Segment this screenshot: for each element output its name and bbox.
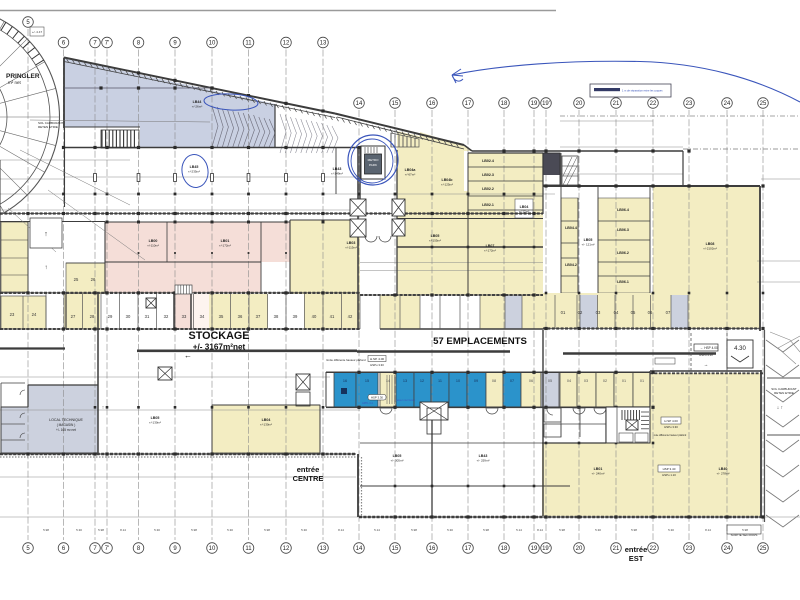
svg-text:LB01: LB01	[221, 239, 230, 243]
svg-text:LB07: LB07	[486, 244, 495, 248]
svg-text:5.98: 5.98	[742, 528, 748, 532]
svg-text:18: 18	[501, 546, 508, 552]
svg-text:LB06.1: LB06.1	[617, 280, 629, 284]
svg-text:04: 04	[614, 310, 619, 315]
svg-text:+/-26m²: +/-26m²	[192, 105, 202, 109]
svg-text:13: 13	[320, 41, 327, 47]
svg-text:+/-115m²: +/-115m²	[345, 246, 357, 250]
svg-text:PRINGLER: PRINGLER	[6, 73, 40, 80]
svg-text:15: 15	[392, 101, 399, 107]
svg-text:+/-67m²: +/-67m²	[405, 173, 415, 177]
svg-text:42: 42	[348, 314, 353, 319]
svg-text:HSPu 3.30: HSPu 3.30	[664, 425, 678, 429]
svg-text:+/- 240m²: +/- 240m²	[592, 472, 605, 476]
svg-text:05: 05	[548, 379, 552, 383]
svg-text:LB05: LB05	[151, 416, 160, 420]
svg-text:+/- 305m²: +/- 305m²	[391, 459, 404, 463]
svg-text:LB40: LB40	[719, 467, 728, 471]
svg-text:4.30: 4.30	[734, 346, 746, 352]
svg-text:+/-12m²: +/-12m²	[519, 210, 529, 214]
svg-text:LB01: LB01	[594, 467, 603, 471]
svg-text:+/-235m²: +/-235m²	[188, 170, 200, 174]
svg-text:24: 24	[724, 101, 731, 107]
svg-text:5.98: 5.98	[631, 528, 637, 532]
svg-text:06: 06	[529, 379, 533, 383]
svg-text:16: 16	[429, 101, 436, 107]
svg-text:+/-130m²: +/-130m²	[260, 423, 272, 427]
svg-text:11: 11	[245, 41, 252, 47]
svg-text:entrée: entrée	[625, 545, 648, 554]
svg-text:03: 03	[596, 310, 601, 315]
svg-text:39: 39	[293, 314, 298, 319]
svg-text:+/-2102m²: +/-2102m²	[703, 247, 717, 251]
svg-text:PARK: PARK	[369, 163, 377, 167]
svg-text:HSPu 4.30: HSPu 4.30	[699, 353, 713, 357]
svg-text:5.30: 5.30	[595, 528, 601, 532]
svg-text:LB05: LB05	[431, 234, 440, 238]
svg-text:EST: EST	[629, 554, 644, 563]
svg-text:19: 19	[531, 101, 538, 107]
svg-text:27: 27	[71, 314, 76, 319]
svg-text:10: 10	[209, 41, 216, 47]
svg-text:25: 25	[760, 546, 767, 552]
svg-text:23: 23	[686, 546, 693, 552]
svg-text:5.98: 5.98	[411, 528, 417, 532]
svg-text:17: 17	[465, 546, 472, 552]
svg-text:+/- 4.47: +/- 4.47	[32, 30, 43, 34]
svg-text:LB44: LB44	[193, 100, 202, 104]
svg-text:METRO: METRO	[368, 158, 379, 162]
svg-text:5.30: 5.30	[76, 528, 82, 532]
svg-text:25: 25	[760, 101, 767, 107]
svg-text:05: 05	[631, 310, 636, 315]
svg-text:12: 12	[283, 41, 290, 47]
svg-text:STOCKAGE: STOCKAGE	[189, 330, 250, 342]
svg-text:+/-125m²: +/-125m²	[441, 183, 453, 187]
svg-text:22: 22	[650, 101, 657, 107]
svg-text:11: 11	[245, 546, 252, 552]
svg-text:21: 21	[613, 101, 620, 107]
svg-text:8.14: 8.14	[537, 528, 543, 532]
svg-text:LB04: LB04	[520, 205, 529, 209]
svg-text:m² net: m² net	[8, 80, 22, 85]
svg-text:5.30: 5.30	[154, 528, 160, 532]
svg-text:5.98: 5.98	[43, 528, 49, 532]
svg-text:5.14: 5.14	[516, 528, 522, 532]
svg-text:+/- 3167m²net: +/- 3167m²net	[193, 343, 246, 352]
svg-text:23: 23	[10, 312, 15, 317]
svg-text:22: 22	[650, 546, 657, 552]
svg-text:+/-155m²: +/-155m²	[429, 239, 441, 243]
svg-text:↑: ↑	[44, 231, 48, 238]
svg-text:8.14: 8.14	[338, 528, 344, 532]
svg-text:LB06.3: LB06.3	[617, 228, 629, 232]
svg-text:HSP 3.30: HSP 3.30	[371, 396, 383, 400]
svg-text:7': 7'	[105, 546, 109, 552]
svg-text:30: 30	[126, 314, 131, 319]
svg-text:01: 01	[640, 379, 644, 383]
svg-text:31: 31	[145, 314, 150, 319]
svg-text:+/-172m²: +/-172m²	[484, 249, 496, 253]
svg-text:H.SP. 4.00: H.SP. 4.00	[370, 357, 384, 361]
svg-text:14: 14	[356, 546, 363, 552]
svg-text:RETEN ETRIE: RETEN ETRIE	[774, 391, 794, 395]
svg-text:+/- 278m²: +/- 278m²	[717, 472, 730, 476]
svg-text:LB43: LB43	[333, 167, 342, 171]
svg-text:HSPu 1.10: HSPu 1.10	[662, 473, 676, 477]
svg-text:← HSP 4.00: ← HSP 4.00	[700, 346, 718, 350]
svg-text:8.14: 8.14	[705, 528, 711, 532]
svg-text:5.98: 5.98	[559, 528, 565, 532]
svg-text:40: 40	[312, 314, 317, 319]
svg-text:LB04.2: LB04.2	[565, 263, 577, 267]
svg-text:SORTIE SECOURS: SORTIE SECOURS	[731, 533, 758, 537]
svg-text:15: 15	[365, 379, 369, 383]
svg-text:10: 10	[209, 546, 216, 552]
svg-text:5.30: 5.30	[301, 528, 307, 532]
svg-text:15: 15	[392, 546, 399, 552]
svg-text:12: 12	[283, 546, 290, 552]
svg-text:08: 08	[492, 379, 496, 383]
svg-text:LB05: LB05	[584, 238, 593, 242]
svg-text:24: 24	[724, 546, 731, 552]
svg-text:5.30: 5.30	[668, 528, 674, 532]
svg-text:19': 19'	[542, 101, 550, 107]
svg-text:LB04b: LB04b	[442, 178, 454, 182]
svg-text:1 m de séparation entre les co: 1 m de séparation entre les coques	[622, 89, 663, 93]
svg-text:57 EMPLACEMENTS: 57 EMPLACEMENTS	[433, 336, 527, 347]
svg-text:APPL 3.4: APPL 3.4	[362, 401, 373, 405]
svg-text:entrée: entrée	[297, 465, 320, 474]
svg-text:02: 02	[603, 379, 607, 383]
svg-text:5.98: 5.98	[264, 528, 270, 532]
svg-text:H.SP 4.00: H.SP 4.00	[664, 419, 678, 423]
svg-text:5.14: 5.14	[374, 528, 380, 532]
svg-text:17: 17	[465, 101, 472, 107]
svg-text:26: 26	[91, 277, 96, 282]
svg-text:41: 41	[330, 314, 335, 319]
svg-text:LB02.2: LB02.2	[482, 187, 494, 191]
svg-text:LB45: LB45	[190, 165, 199, 169]
svg-text:note différente hauteur plafon: note différente hauteur plafond	[654, 434, 687, 437]
svg-text:37: 37	[256, 314, 261, 319]
svg-text:+/- 259m²: +/- 259m²	[477, 459, 490, 463]
svg-text:limite différente hauteur plaf: limite différente hauteur plafond	[326, 358, 366, 362]
svg-text:+/-149m²: +/-149m²	[331, 172, 343, 176]
svg-text:+/- 165 m² net: +/- 165 m² net	[56, 428, 76, 432]
svg-text:8.14: 8.14	[120, 528, 126, 532]
svg-text:5.98: 5.98	[98, 528, 104, 532]
svg-text:02: 02	[578, 310, 583, 315]
svg-text:HSP 3.40: HSP 3.40	[663, 467, 676, 471]
svg-text:21: 21	[613, 546, 620, 552]
svg-text:16: 16	[429, 546, 436, 552]
svg-text:07: 07	[666, 310, 671, 315]
svg-text:33: 33	[182, 314, 187, 319]
svg-text:+/- 121m²: +/- 121m²	[582, 243, 595, 247]
svg-text:→: →	[704, 362, 709, 367]
svg-text:28: 28	[90, 314, 95, 319]
svg-text:↓ ↑: ↓ ↑	[777, 405, 783, 411]
svg-text:↑: ↑	[102, 405, 105, 411]
svg-text:( MAGASIN ): ( MAGASIN )	[57, 423, 76, 427]
svg-text:LB06.2: LB06.2	[617, 251, 629, 255]
svg-text:10: 10	[456, 379, 460, 383]
svg-text:LB02.4: LB02.4	[482, 159, 494, 163]
svg-text:RETEN ETRIE: RETEN ETRIE	[38, 125, 58, 129]
svg-text:07: 07	[510, 379, 514, 383]
svg-text:01: 01	[622, 379, 626, 383]
svg-text:LB02.1: LB02.1	[482, 203, 494, 207]
svg-text:+/-172m²: +/-172m²	[219, 244, 231, 248]
svg-text:LB00: LB00	[149, 239, 158, 243]
svg-text:20: 20	[576, 546, 583, 552]
svg-text:LB08: LB08	[706, 242, 715, 246]
svg-text:LB04: LB04	[262, 418, 271, 422]
svg-text:LB05: LB05	[393, 454, 402, 458]
svg-text:06: 06	[648, 310, 653, 315]
svg-text:5.98: 5.98	[191, 528, 197, 532]
svg-text:36: 36	[238, 314, 243, 319]
svg-text:35: 35	[219, 314, 224, 319]
svg-text:24: 24	[32, 312, 37, 317]
svg-text:04: 04	[567, 379, 571, 383]
svg-text:14: 14	[356, 101, 363, 107]
svg-text:11: 11	[438, 379, 442, 383]
svg-text:LB04a: LB04a	[405, 168, 417, 172]
svg-text:23: 23	[686, 101, 693, 107]
svg-text:LB06.4: LB06.4	[617, 208, 629, 212]
svg-text:←: ←	[184, 351, 192, 360]
svg-text:25: 25	[74, 277, 79, 282]
svg-text:5.98: 5.98	[483, 528, 489, 532]
svg-text:LB02.3: LB02.3	[482, 173, 494, 177]
svg-text:13: 13	[403, 379, 407, 383]
svg-text:19': 19'	[542, 546, 550, 552]
svg-text:12: 12	[420, 379, 424, 383]
svg-text:20: 20	[576, 101, 583, 107]
svg-text:09: 09	[474, 379, 478, 383]
svg-text:13: 13	[320, 546, 327, 552]
svg-text:03: 03	[584, 379, 588, 383]
svg-text:32: 32	[164, 314, 169, 319]
svg-text:CENTRE: CENTRE	[293, 474, 324, 483]
svg-text:29: 29	[108, 314, 113, 319]
svg-text:↑: ↑	[45, 265, 48, 271]
svg-text:01: 01	[561, 310, 566, 315]
svg-text:LB04.4: LB04.4	[565, 226, 577, 230]
svg-text:5.30: 5.30	[227, 528, 233, 532]
svg-text:5.30: 5.30	[447, 528, 453, 532]
svg-text:LOCAL TECHNIQUE: LOCAL TECHNIQUE	[49, 418, 83, 422]
svg-text:34: 34	[200, 314, 205, 319]
svg-text:retour mur beton: retour mur beton	[396, 398, 416, 402]
svg-text:+/-110m²: +/-110m²	[147, 244, 159, 248]
svg-text:38: 38	[274, 314, 279, 319]
svg-text:HSPu 3.30: HSPu 3.30	[370, 363, 384, 367]
svg-text:LB03: LB03	[347, 241, 356, 245]
svg-text:7': 7'	[105, 41, 109, 47]
svg-text:18: 18	[501, 101, 508, 107]
svg-text:16: 16	[343, 379, 347, 383]
svg-text:19: 19	[531, 546, 538, 552]
svg-text:LB43: LB43	[479, 454, 488, 458]
svg-text:+/-130m²: +/-130m²	[149, 421, 161, 425]
